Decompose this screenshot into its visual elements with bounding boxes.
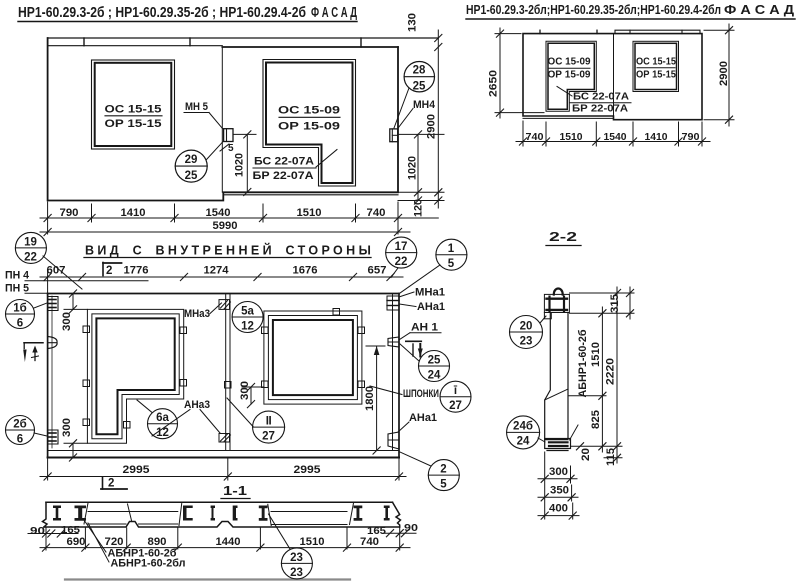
svg-text:2б: 2б — [13, 419, 27, 431]
svg-text:740: 740 — [367, 207, 386, 219]
svg-text:АБНР1-60-2б: АБНР1-60-2б — [577, 329, 589, 397]
svg-text:1: 1 — [448, 243, 455, 255]
svg-text:6: 6 — [17, 434, 23, 446]
svg-text:Ф А С А Д: Ф А С А Д — [311, 5, 357, 21]
svg-text:5: 5 — [440, 479, 447, 491]
svg-text:МН4: МН4 — [413, 99, 436, 111]
svg-text:350: 350 — [550, 485, 569, 497]
svg-text:МНа3: МНа3 — [184, 308, 210, 320]
svg-text:740: 740 — [360, 536, 379, 548]
svg-text:1020: 1020 — [234, 153, 246, 177]
svg-text:790: 790 — [682, 131, 700, 143]
svg-text:115: 115 — [605, 448, 617, 466]
svg-text:2995: 2995 — [294, 464, 321, 476]
svg-text:17: 17 — [395, 241, 408, 253]
svg-text:2650: 2650 — [488, 70, 500, 97]
svg-text:НР1-60.29.3-2бл;НР1-60.29.35-2: НР1-60.29.3-2бл;НР1-60.29.35-2бл;НР1-60.… — [466, 2, 721, 17]
svg-text:790: 790 — [60, 207, 79, 219]
svg-text:5а: 5а — [241, 306, 254, 318]
svg-text:23: 23 — [290, 552, 303, 564]
svg-text:12: 12 — [241, 321, 254, 333]
svg-text:6: 6 — [17, 318, 23, 330]
svg-text:II: II — [266, 416, 272, 428]
svg-text:315: 315 — [609, 294, 621, 313]
svg-text:740: 740 — [526, 131, 544, 143]
svg-text:БС 22-07А: БС 22-07А — [254, 156, 314, 168]
svg-text:БР 22-07А: БР 22-07А — [572, 103, 628, 115]
svg-text:5990: 5990 — [213, 220, 238, 232]
svg-text:720: 720 — [105, 536, 124, 548]
svg-text:ОР 15-09: ОР 15-09 — [548, 70, 591, 81]
svg-text:1540: 1540 — [206, 207, 231, 219]
svg-text:АНа3: АНа3 — [184, 399, 210, 411]
svg-text:1б: 1б — [13, 303, 27, 315]
svg-text:657: 657 — [368, 265, 387, 277]
svg-text:ОР 15-09: ОР 15-09 — [278, 121, 340, 133]
svg-text:1510: 1510 — [560, 131, 583, 143]
svg-text:1510: 1510 — [300, 536, 325, 548]
svg-text:25: 25 — [413, 81, 426, 93]
svg-text:23: 23 — [520, 336, 533, 348]
svg-text:90: 90 — [30, 525, 45, 537]
svg-text:20: 20 — [580, 448, 592, 461]
svg-text:23: 23 — [290, 567, 303, 579]
svg-text:АБНР1-60-2бл: АБНР1-60-2бл — [111, 558, 186, 570]
svg-text:МН 5: МН 5 — [185, 101, 208, 113]
svg-text:ВИД С ВНУТРЕННЕЙ СТОРОНЫ: ВИД С ВНУТРЕННЕЙ СТОРОНЫ — [85, 243, 374, 258]
svg-text:25: 25 — [185, 170, 198, 182]
svg-text:2220: 2220 — [605, 358, 617, 385]
svg-text:24б: 24б — [513, 421, 533, 433]
svg-text:2995: 2995 — [123, 464, 150, 476]
svg-text:ОС 15-15: ОС 15-15 — [105, 104, 162, 116]
svg-text:890: 890 — [148, 536, 167, 548]
svg-text:2: 2 — [108, 478, 114, 490]
svg-text:1020: 1020 — [407, 156, 419, 180]
svg-text:ОР 15-15: ОР 15-15 — [636, 70, 676, 81]
svg-text:НР1-60.29.3-2б ; НР1-60.29.35-: НР1-60.29.3-2б ; НР1-60.29.35-2б ; НР1-6… — [18, 5, 306, 21]
svg-text:6а: 6а — [156, 412, 169, 424]
svg-text:АНа1: АНа1 — [409, 412, 437, 424]
svg-text:1540: 1540 — [604, 131, 627, 143]
svg-text:1-1: 1-1 — [223, 484, 247, 498]
svg-text:ОС 15-09: ОС 15-09 — [278, 105, 340, 117]
svg-text:130: 130 — [407, 13, 419, 32]
svg-text:24: 24 — [517, 436, 530, 448]
svg-text:825: 825 — [590, 410, 602, 429]
svg-text:МНа1: МНа1 — [415, 287, 445, 299]
svg-text:5: 5 — [228, 143, 234, 154]
svg-text:1410: 1410 — [121, 207, 146, 219]
svg-text:1510: 1510 — [590, 342, 602, 367]
svg-text:300: 300 — [61, 418, 73, 437]
svg-text:1274: 1274 — [204, 265, 230, 277]
svg-text:165: 165 — [61, 524, 80, 536]
svg-text:АН 1: АН 1 — [411, 322, 438, 334]
svg-text:25: 25 — [428, 355, 441, 367]
svg-text:90: 90 — [404, 522, 418, 534]
svg-text:2-2: 2-2 — [549, 230, 577, 244]
svg-text:1410: 1410 — [645, 131, 668, 143]
svg-text:120: 120 — [413, 199, 425, 217]
svg-text:ОР 15-15: ОР 15-15 — [105, 118, 162, 130]
svg-text:БР 22-07А: БР 22-07А — [253, 170, 314, 182]
svg-text:АНа1: АНа1 — [417, 301, 445, 313]
svg-text:28: 28 — [413, 65, 426, 77]
svg-text:ОС 15-15: ОС 15-15 — [636, 57, 676, 68]
svg-text:300: 300 — [549, 466, 568, 478]
svg-text:24: 24 — [428, 370, 441, 382]
svg-text:Ф А С А Д: Ф А С А Д — [724, 2, 795, 17]
svg-text:1510: 1510 — [297, 207, 322, 219]
svg-text:1776: 1776 — [124, 265, 149, 277]
svg-text:22: 22 — [24, 252, 37, 264]
svg-text:БС 22-07А: БС 22-07А — [573, 91, 629, 103]
svg-text:1800: 1800 — [364, 386, 376, 411]
svg-text:29: 29 — [185, 154, 198, 166]
svg-text:300: 300 — [61, 312, 73, 331]
svg-text:22: 22 — [395, 256, 408, 268]
svg-text:300: 300 — [239, 381, 251, 400]
svg-text:ШПОНКИ: ШПОНКИ — [403, 388, 439, 400]
svg-text:2900: 2900 — [426, 114, 438, 139]
svg-text:2: 2 — [106, 265, 112, 277]
svg-text:27: 27 — [449, 400, 462, 412]
svg-text:1676: 1676 — [293, 265, 318, 277]
svg-text:27: 27 — [262, 431, 275, 443]
svg-text:1440: 1440 — [216, 536, 241, 548]
svg-text:19: 19 — [24, 237, 37, 249]
svg-text:ПН 4: ПН 4 — [5, 270, 30, 282]
svg-text:690: 690 — [67, 536, 86, 548]
svg-text:20: 20 — [520, 321, 533, 333]
svg-text:2: 2 — [440, 464, 446, 476]
svg-text:ОС 15-09: ОС 15-09 — [548, 57, 591, 68]
svg-text:5: 5 — [448, 258, 455, 270]
svg-text:12: 12 — [156, 427, 169, 439]
svg-text:ПН 5: ПН 5 — [5, 283, 29, 295]
svg-text:2900: 2900 — [718, 61, 730, 86]
svg-text:400: 400 — [549, 503, 568, 515]
